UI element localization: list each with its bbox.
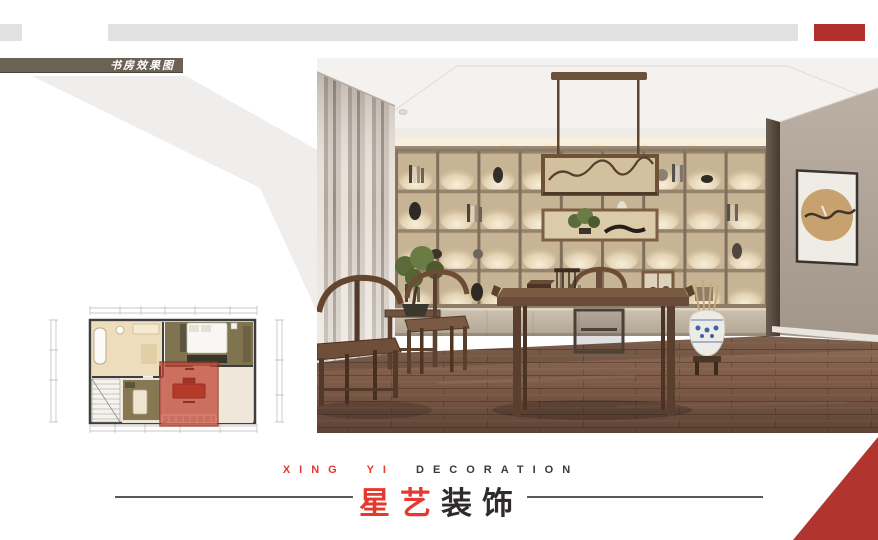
wall-artwork xyxy=(797,170,857,264)
brand-cn-accent: 星艺 xyxy=(359,486,441,521)
brand-en-rest: DECORATION xyxy=(416,464,579,476)
divider-line-left xyxy=(115,496,353,498)
plan-bedroom xyxy=(165,322,253,366)
brand-name-cn: 星艺装饰 xyxy=(281,478,601,523)
top-accent-bar-red xyxy=(814,24,865,41)
presentation-slide: 书房效果图 xyxy=(0,0,878,540)
plan-stairs xyxy=(92,379,120,422)
brand-en-accent: XING YI xyxy=(283,464,395,476)
study-highlight xyxy=(160,362,218,426)
top-accent-bar-long xyxy=(108,24,798,41)
floor-plan-drawing xyxy=(45,300,290,448)
feature-niche xyxy=(543,208,657,240)
plan-small-room xyxy=(123,380,160,420)
brand-cn-rest: 装饰 xyxy=(441,486,523,521)
corner-triangle xyxy=(793,437,878,540)
plan-bathroom xyxy=(92,322,163,376)
floor-plan xyxy=(45,300,290,448)
background-wedge xyxy=(0,0,317,330)
study-room-render xyxy=(317,58,878,433)
ceiling-downlight xyxy=(399,110,407,115)
top-accent-bar-small xyxy=(0,24,22,41)
under-desk-stand xyxy=(575,310,623,352)
divider-line-right xyxy=(527,496,763,498)
shelf-side-panel xyxy=(766,118,780,336)
study-room-photo xyxy=(317,58,878,433)
brand-name-en: XING YI DECORATION xyxy=(251,464,611,476)
section-label: 书房效果图 xyxy=(0,58,183,73)
